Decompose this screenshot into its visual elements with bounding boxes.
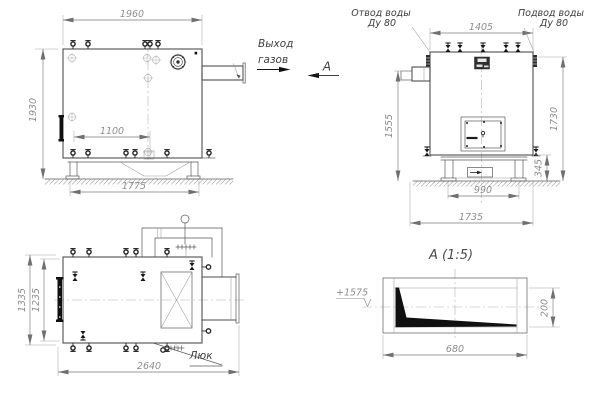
plan-view: Люк 1335 1235 2640 [17,215,247,376]
dim-text-200: 200 [540,299,551,317]
gas-pipe-front [401,67,430,81]
side-flange-circle [169,53,187,71]
dim-detail-width: 680 [383,335,527,359]
detail-title: А (1:5) [428,248,473,263]
boiler-technical-drawing: 1960 1930 1100 1775 Выход газов А [0,0,600,400]
dim-front-base-height: 345 [534,155,552,181]
annotations: Выход газов А [257,38,339,78]
side-corner-fitting [195,52,198,55]
outlet-leader-line [412,27,430,52]
door-peephole [481,131,484,134]
hatch-label: Люк [188,350,213,362]
gas-flow-arrow-icon [257,67,291,72]
dim-text-1730: 1730 [549,107,560,131]
dim-text-1930: 1930 [28,98,39,122]
dim-front-left: 1555 [384,71,410,181]
dim-text-680: 680 [446,344,464,355]
gas-outlet-pipe-side [202,63,245,83]
side-support-frame [66,151,200,179]
nameplate [475,57,490,69]
plan-left-strip [56,277,64,322]
side-top-valves [70,41,160,49]
front-view: 1405 Отвод воды Ду 80 Подвод воды Ду 80 … [351,8,584,226]
dim-detail-height: 200 [529,288,560,327]
elevation-text: +1575 [336,288,368,299]
detail-view-a: А (1:5) +1575 200 680 [336,248,560,359]
water-inlet-dn: Ду 80 [539,18,568,29]
dim-side-height: 1930 [28,49,58,179]
weld-wedge-profile [396,288,517,328]
flue-pipe-plan [202,274,239,323]
dim-front-base-outer: 1735 [410,182,533,226]
furnace-door [461,117,505,151]
plan-bottom-valves [70,343,169,351]
water-inlet-flange [533,55,537,67]
plan-safety-valve [176,215,196,257]
dim-side-width: 1960 [63,9,202,45]
dim-text-1555: 1555 [384,114,395,138]
dim-text-1775: 1775 [122,181,146,192]
gas-outlet-label-line1: Выход [258,38,293,50]
gas-outlet-label-line2: газов [258,54,288,66]
plan-duct-outline [142,228,222,277]
elevation-mark: +1575 [336,288,371,307]
section-arrow-icon [308,73,340,78]
dim-text-1100: 1100 [100,126,124,137]
dim-text-1405: 1405 [469,22,493,33]
water-outlet-dn: Ду 80 [367,18,396,29]
dim-text-990: 990 [474,185,492,196]
dim-text-1235: 1235 [31,288,42,312]
side-bottom-valves [70,150,215,158]
dim-text-1335: 1335 [17,288,28,312]
dim-text-2640: 2640 [137,361,161,372]
front-support-frame [441,157,527,181]
section-letter: А [322,60,331,74]
dim-text-1960: 1960 [120,9,144,20]
front-top-valves [445,43,520,52]
side-view: 1960 1930 1100 1775 [28,9,245,196]
plan-side-nozzles [161,265,211,352]
side-crosshair-marks [67,53,162,158]
hatch-leader: Люк [153,343,222,366]
water-outlet-flange [426,55,430,67]
dim-text-345: 345 [534,159,545,177]
dim-text-1735: 1735 [459,212,483,223]
inlet-leader-line [524,28,534,52]
